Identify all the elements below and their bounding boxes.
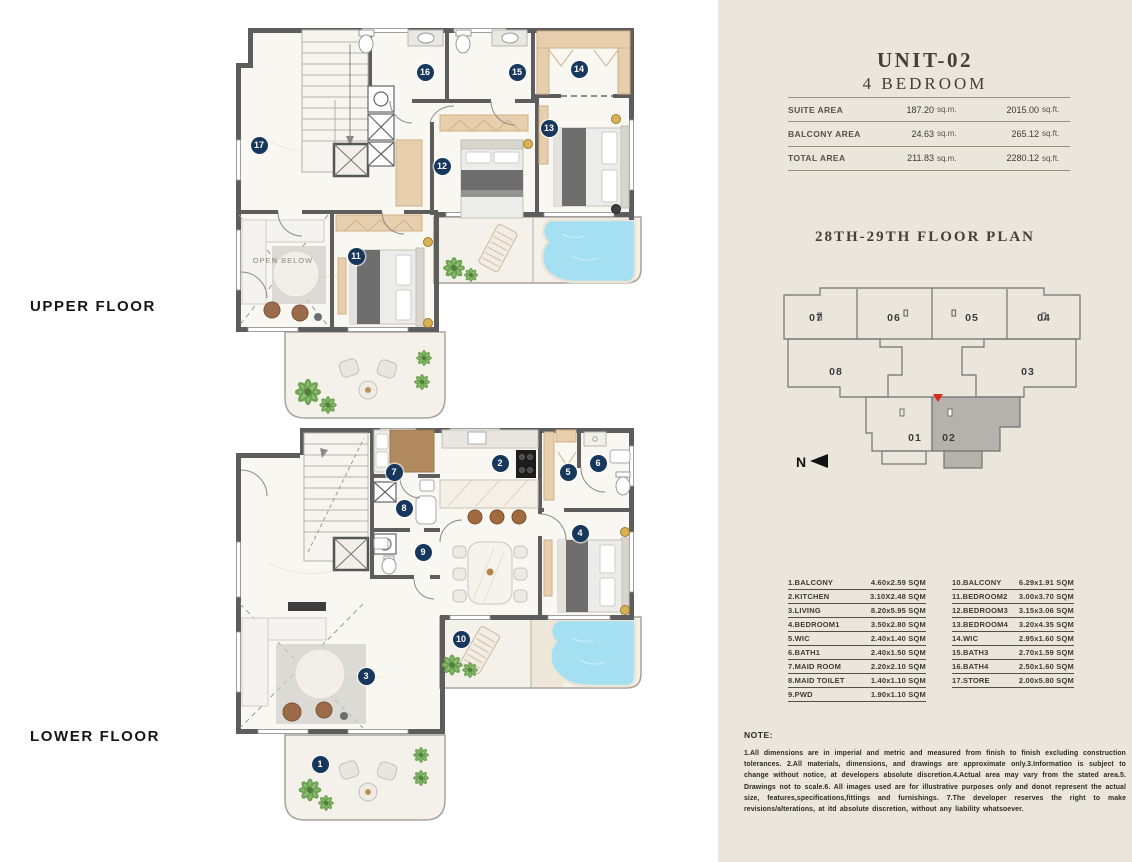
lower-pool xyxy=(550,620,635,686)
legend-row: 17.STORE2.00x5.80 SQM xyxy=(952,674,1074,688)
key-unit-02: 02 xyxy=(942,432,956,444)
lower-floor-label: LOWER FLOOR xyxy=(30,728,160,745)
room-badge-6: 6 xyxy=(590,455,607,472)
laundry-icons xyxy=(368,86,394,166)
upper-floor-plan: OPEN BELOW xyxy=(228,20,643,420)
room-badge-4: 4 xyxy=(572,525,589,542)
area-row: SUITE AREA187.20sq.m.2015.00sq.ft. xyxy=(788,97,1070,121)
area-row: BALCONY AREA24.63sq.m.265.12sq.ft. xyxy=(788,121,1070,145)
open-below-label: OPEN BELOW xyxy=(253,256,313,265)
floor-plan-title: 28TH-29TH FLOOR PLAN xyxy=(718,229,1132,246)
note-section: NOTE: 1.All dimensions are in imperial a… xyxy=(744,730,1126,815)
key-unit-08: 08 xyxy=(829,366,843,378)
unit-title: UNIT-02 xyxy=(718,48,1132,73)
room-badge-15: 15 xyxy=(509,64,526,81)
room-legend: 1.BALCONY4.60x2.59 SQM2.KITCHEN3.10X2.48… xyxy=(788,576,1074,702)
room-badge-13: 13 xyxy=(541,120,558,137)
plant-icon xyxy=(414,748,428,762)
plant-icon xyxy=(319,796,333,810)
legend-row: 4.BEDROOM13.50x2.80 SQM xyxy=(788,618,926,632)
room-badge-11: 11 xyxy=(348,248,365,265)
elevator-icon xyxy=(334,538,368,570)
legend-row: 11.BEDROOM23.00x3.70 SQM xyxy=(952,590,1074,604)
legend-row: 1.BALCONY4.60x2.59 SQM xyxy=(788,576,926,590)
legend-column-right: 10.BALCONY6.29x1.91 SQM11.BEDROOM23.00x3… xyxy=(952,576,1074,702)
plant-icon xyxy=(417,351,431,365)
plant-icon xyxy=(415,375,429,389)
legend-row: 10.BALCONY6.29x1.91 SQM xyxy=(952,576,1074,590)
key-unit-04: 04 xyxy=(1037,312,1051,324)
legend-column-left: 1.BALCONY4.60x2.59 SQM2.KITCHEN3.10X2.48… xyxy=(788,576,926,702)
room-badge-16: 16 xyxy=(417,64,434,81)
plant-icon xyxy=(442,655,461,674)
info-panel: UNIT-02 4 BEDROOM SUITE AREA187.20sq.m.2… xyxy=(718,0,1132,862)
legend-row: 14.WIC2.95x1.60 SQM xyxy=(952,632,1074,646)
area-table: SUITE AREA187.20sq.m.2015.00sq.ft.BALCON… xyxy=(788,97,1070,171)
room-badge-2: 2 xyxy=(492,455,509,472)
plant-icon xyxy=(465,269,478,282)
room-badge-10: 10 xyxy=(453,631,470,648)
room-badge-12: 12 xyxy=(434,158,451,175)
north-label: N xyxy=(796,454,806,470)
floor-plan-page: UPPER FLOOR LOWER FLOOR xyxy=(0,0,1132,862)
key-unit-03: 03 xyxy=(1021,366,1035,378)
legend-row: 3.LIVING8.20x5.95 SQM xyxy=(788,604,926,618)
room-badge-9: 9 xyxy=(415,544,432,561)
plant-icon xyxy=(296,380,320,404)
plant-icon xyxy=(414,771,428,785)
legend-row: 5.WIC2.40x1.40 SQM xyxy=(788,632,926,646)
legend-row: 13.BEDROOM43.20x4.35 SQM xyxy=(952,618,1074,632)
legend-row: 9.PWD1.90x1.10 SQM xyxy=(788,688,926,702)
legend-row: 12.BEDROOM33.15x3.06 SQM xyxy=(952,604,1074,618)
lower-floor-plan: 72568941031 xyxy=(228,422,643,822)
elevator-icon xyxy=(334,144,368,176)
plant-icon xyxy=(463,663,477,677)
legend-row: 7.MAID ROOM2.20x2.10 SQM xyxy=(788,660,926,674)
north-arrow-icon xyxy=(810,454,828,468)
plant-icon xyxy=(444,258,464,278)
maid-bed-icon xyxy=(374,430,434,472)
key-unit-07: 07 xyxy=(809,312,823,324)
area-row: TOTAL AREA211.83sq.m.2280.12sq.ft. xyxy=(788,146,1070,171)
key-unit-01: 01 xyxy=(908,432,922,444)
plant-icon xyxy=(300,780,321,801)
room-badge-14: 14 xyxy=(571,61,588,78)
unit-subtitle: 4 BEDROOM xyxy=(718,74,1132,94)
legend-row: 8.MAID TOILET1.40x1.10 SQM xyxy=(788,674,926,688)
plant-icon xyxy=(320,397,336,413)
key-unit-05: 05 xyxy=(965,312,979,324)
room-badge-5: 5 xyxy=(560,464,577,481)
note-body: 1.All dimensions are in imperial and met… xyxy=(744,748,1126,815)
dining-table-icon xyxy=(453,542,527,604)
closet xyxy=(396,140,422,206)
legend-row: 16.BATH42.50x1.60 SQM xyxy=(952,660,1074,674)
key-unit-06: 06 xyxy=(887,312,901,324)
room-badge-8: 8 xyxy=(396,500,413,517)
key-plan: 07 06 05 04 08 03 01 02 xyxy=(782,283,1082,473)
legend-row: 15.BATH32.70x1.59 SQM xyxy=(952,646,1074,660)
legend-row: 2.KITCHEN3.10X2.48 SQM xyxy=(788,590,926,604)
room-badge-17: 17 xyxy=(251,137,268,154)
room-badge-3: 3 xyxy=(358,668,375,685)
room-badge-7: 7 xyxy=(386,464,403,481)
north-indicator: N xyxy=(792,450,836,477)
room-badge-1: 1 xyxy=(312,756,329,773)
note-title: NOTE: xyxy=(744,730,1126,740)
legend-row: 6.BATH12.40x1.50 SQM xyxy=(788,646,926,660)
upper-floor-label: UPPER FLOOR xyxy=(30,298,156,315)
upper-pool xyxy=(542,220,635,282)
